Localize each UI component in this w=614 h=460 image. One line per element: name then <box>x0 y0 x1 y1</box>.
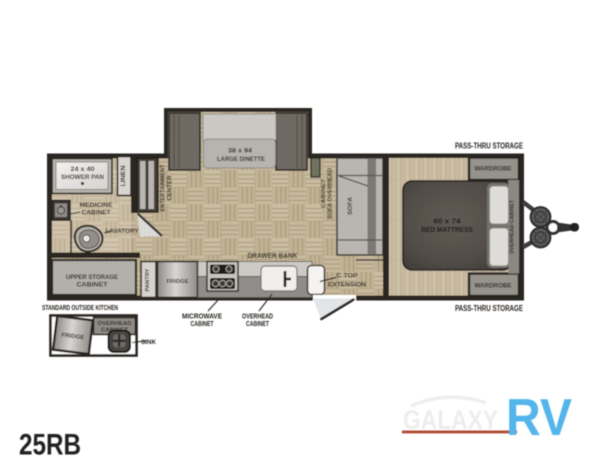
svg-text:SOFA: SOFA <box>347 197 354 215</box>
svg-text:CABINET: CABINET <box>82 210 111 217</box>
svg-text:ENTERTAINMENT: ENTERTAINMENT <box>161 164 167 211</box>
svg-text:OVERHEAD: OVERHEAD <box>242 314 273 321</box>
svg-text:LINEN: LINEN <box>121 166 127 187</box>
svg-text:LAVATORY: LAVATORY <box>106 228 140 235</box>
svg-text:STANDARD OUTSIDE KITCHEN: STANDARD OUTSIDE KITCHEN <box>42 305 118 312</box>
svg-text:MEDICINE: MEDICINE <box>80 202 114 209</box>
svg-text:CABINET: CABINET <box>77 282 109 289</box>
svg-text:60 x 74: 60 x 74 <box>434 219 461 226</box>
svg-text:RV: RV <box>506 389 572 447</box>
svg-text:WARDROBE: WARDROBE <box>475 283 512 290</box>
svg-text:OVERHEAD CABINET: OVERHEAD CABINET <box>510 200 516 254</box>
svg-text:DRAWER BANK: DRAWER BANK <box>248 253 298 260</box>
svg-text:SOFA OVERHEAD: SOFA OVERHEAD <box>328 168 334 219</box>
svg-text:MICROWAVE: MICROWAVE <box>182 314 222 321</box>
svg-text:CABINET: CABINET <box>191 321 215 328</box>
svg-text:LARGE DINETTE: LARGE DINETTE <box>217 156 266 163</box>
svg-text:CABINET: CABINET <box>246 321 270 328</box>
svg-text:24 x 40: 24 x 40 <box>71 166 96 173</box>
svg-text:PASS-THRU STORAGE: PASS-THRU STORAGE <box>455 142 524 151</box>
svg-text:OVERHEAD: OVERHEAD <box>98 321 132 327</box>
svg-text:BED MATTRESS: BED MATTRESS <box>421 227 473 234</box>
svg-text:WARDROBE: WARDROBE <box>475 166 512 173</box>
svg-text:PASS-THRU STORAGE: PASS-THRU STORAGE <box>455 304 524 313</box>
svg-text:25RB: 25RB <box>19 429 81 460</box>
svg-text:SINK: SINK <box>141 339 157 346</box>
svg-text:PANTRY: PANTRY <box>145 268 151 291</box>
svg-text:CENTER: CENTER <box>168 175 174 201</box>
svg-text:SHOWER PAN: SHOWER PAN <box>61 174 104 181</box>
svg-text:EXTENSION: EXTENSION <box>328 282 366 289</box>
svg-text:38 x 94: 38 x 94 <box>228 148 252 155</box>
svg-text:FRIDGE: FRIDGE <box>167 279 189 285</box>
svg-text:UPPER STORAGE: UPPER STORAGE <box>66 274 118 281</box>
svg-text:CABINET: CABINET <box>321 178 327 208</box>
svg-text:C TOP: C TOP <box>337 273 359 280</box>
